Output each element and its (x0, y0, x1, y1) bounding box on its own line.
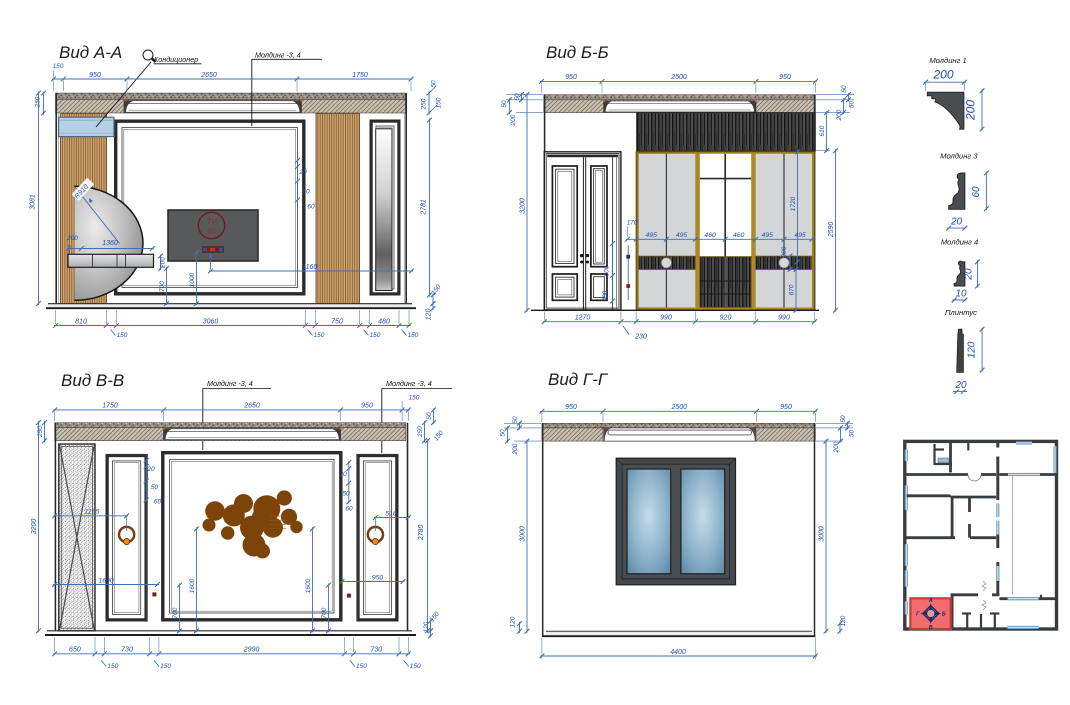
svg-text:650: 650 (69, 647, 81, 654)
svg-text:Молдинг 4: Молдинг 4 (941, 238, 978, 247)
svg-text:495: 495 (676, 232, 688, 239)
svg-text:2650: 2650 (200, 72, 217, 79)
svg-text:3160: 3160 (302, 264, 318, 271)
svg-text:950: 950 (372, 574, 384, 581)
svg-text:250: 250 (35, 96, 42, 108)
svg-text:2500: 2500 (671, 404, 688, 411)
svg-text:990: 990 (778, 315, 790, 322)
svg-text:Вид В-В: Вид В-В (61, 371, 124, 390)
svg-text:1270: 1270 (575, 315, 591, 322)
svg-text:950: 950 (565, 74, 577, 81)
svg-text:150: 150 (408, 332, 419, 339)
svg-text:50: 50 (431, 80, 438, 88)
svg-text:50: 50 (514, 93, 521, 101)
svg-text:670: 670 (789, 284, 796, 295)
svg-text:1000: 1000 (189, 272, 196, 287)
svg-text:170: 170 (627, 220, 638, 227)
svg-text:150: 150 (356, 663, 367, 670)
svg-text:50: 50 (849, 101, 856, 109)
svg-text:60: 60 (307, 204, 315, 211)
svg-text:1165: 1165 (85, 509, 100, 516)
svg-text:50: 50 (151, 484, 159, 491)
svg-text:950: 950 (780, 404, 792, 411)
svg-text:920: 920 (720, 315, 732, 322)
svg-text:700: 700 (321, 607, 328, 618)
svg-text:200: 200 (964, 100, 978, 121)
svg-text:200: 200 (512, 443, 519, 455)
svg-text:810: 810 (75, 318, 87, 325)
svg-text:250: 250 (37, 426, 44, 438)
svg-text:150: 150 (314, 332, 325, 339)
svg-text:200: 200 (66, 235, 78, 242)
svg-text:460: 460 (704, 232, 716, 239)
svg-text:Молдинг 1: Молдинг 1 (929, 56, 966, 65)
svg-text:2650: 2650 (243, 403, 260, 410)
svg-text:150: 150 (410, 663, 421, 670)
svg-text:200: 200 (836, 109, 843, 121)
svg-text:Молдинг -3, 4: Молдинг -3, 4 (386, 379, 432, 388)
svg-text:950: 950 (565, 404, 577, 411)
svg-text:Вид Г-Г: Вид Г-Г (548, 370, 609, 389)
svg-text:500: 500 (604, 265, 611, 276)
svg-text:60: 60 (154, 499, 162, 506)
svg-text:2990: 2990 (243, 647, 260, 654)
svg-text:60: 60 (345, 506, 353, 513)
svg-text:700: 700 (159, 281, 166, 292)
svg-text:700: 700 (172, 607, 179, 618)
svg-text:150: 150 (409, 395, 420, 402)
svg-text:230: 230 (634, 334, 647, 341)
svg-text:50: 50 (342, 491, 350, 498)
svg-text:3060: 3060 (203, 318, 219, 325)
svg-text:480: 480 (378, 318, 390, 325)
svg-text:950: 950 (361, 403, 373, 410)
svg-text:50: 50 (841, 85, 848, 93)
svg-text:Кондиционер: Кондиционер (154, 55, 198, 64)
svg-text:20: 20 (298, 169, 307, 176)
svg-text:150: 150 (53, 63, 64, 70)
svg-text:150: 150 (107, 663, 118, 670)
svg-text:120: 120 (426, 309, 433, 321)
svg-text:2781: 2781 (420, 199, 427, 216)
svg-text:10: 10 (955, 289, 967, 300)
svg-text:495: 495 (646, 232, 658, 239)
svg-text:200: 200 (510, 114, 517, 126)
svg-text:120: 120 (967, 341, 978, 358)
svg-text:2780: 2780 (418, 525, 425, 542)
svg-text:А: А (928, 598, 933, 604)
svg-text:200: 200 (160, 257, 167, 269)
svg-text:3081: 3081 (30, 194, 37, 210)
svg-text:150: 150 (370, 332, 381, 339)
svg-text:1750: 1750 (352, 72, 368, 79)
svg-text:Б: Б (942, 612, 946, 618)
svg-text:20: 20 (964, 268, 975, 281)
svg-text:Молдинг 3: Молдинг 3 (940, 152, 978, 161)
svg-text:В: В (929, 625, 933, 631)
svg-text:50: 50 (512, 416, 519, 424)
svg-text:20: 20 (950, 217, 963, 228)
svg-text:1600: 1600 (305, 578, 312, 593)
svg-text:150: 150 (117, 332, 128, 339)
svg-text:4400: 4400 (670, 649, 686, 656)
svg-text:200: 200 (932, 68, 953, 82)
svg-text:50: 50 (849, 430, 856, 438)
svg-text:3000: 3000 (819, 526, 826, 542)
svg-text:1600: 1600 (189, 578, 196, 593)
svg-text:1600: 1600 (98, 577, 113, 584)
svg-text:Плинтус: Плинтус (945, 308, 977, 317)
svg-text:730: 730 (121, 647, 133, 654)
svg-text:750: 750 (331, 318, 343, 325)
svg-text:460: 460 (733, 232, 745, 239)
svg-text:50: 50 (426, 412, 433, 420)
svg-text:1720: 1720 (790, 196, 797, 211)
svg-text:250: 250 (421, 98, 428, 110)
svg-text:1750: 1750 (102, 403, 118, 410)
svg-text:950: 950 (89, 72, 101, 79)
svg-text:950: 950 (779, 74, 791, 81)
svg-text:610: 610 (819, 125, 826, 136)
svg-text:120: 120 (423, 621, 430, 632)
svg-text:Молдинг -3, 4: Молдинг -3, 4 (255, 51, 301, 60)
svg-text:65: 65 (207, 227, 216, 236)
svg-text:3200: 3200 (520, 198, 527, 214)
svg-text:Молдинг -3, 4: Молдинг -3, 4 (207, 379, 253, 388)
svg-text:250: 250 (417, 426, 424, 438)
svg-text:2500: 2500 (670, 74, 687, 81)
svg-text:730: 730 (370, 647, 382, 654)
svg-text:50: 50 (501, 100, 508, 108)
svg-text:Вид Б-Б: Вид Б-Б (546, 43, 609, 62)
svg-text:516: 516 (385, 510, 397, 517)
svg-text:3200: 3200 (31, 519, 38, 535)
svg-text:3000: 3000 (520, 526, 527, 542)
svg-text:20: 20 (146, 466, 155, 473)
svg-text:TV: TV (207, 217, 218, 226)
svg-text:1360: 1360 (102, 240, 118, 247)
svg-text:150: 150 (436, 97, 443, 108)
svg-text:400: 400 (602, 290, 609, 301)
svg-text:120: 120 (840, 615, 847, 626)
svg-text:Вид А-А: Вид А-А (59, 43, 122, 62)
svg-text:50: 50 (302, 189, 310, 196)
svg-text:120: 120 (510, 616, 517, 627)
svg-text:495: 495 (762, 232, 774, 239)
svg-text:200: 200 (833, 441, 840, 453)
svg-text:495: 495 (794, 232, 806, 239)
svg-text:150: 150 (160, 663, 171, 670)
svg-text:50: 50 (840, 415, 847, 423)
svg-text:60: 60 (971, 186, 982, 198)
svg-text:200: 200 (781, 246, 788, 258)
svg-text:2590: 2590 (828, 222, 835, 239)
svg-text:20: 20 (338, 471, 347, 478)
svg-text:990: 990 (660, 315, 672, 322)
